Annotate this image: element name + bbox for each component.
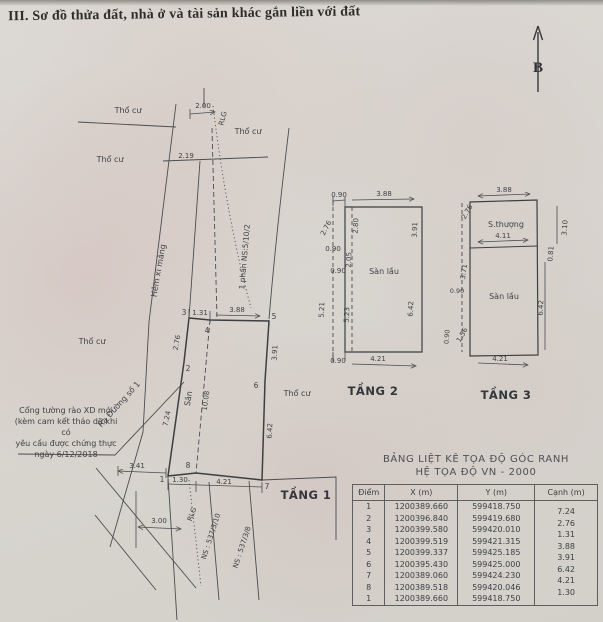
cell-edge: 2.76 (537, 519, 595, 528)
cell-point: 1 (353, 593, 385, 605)
t3-dim-371: 3.71 (459, 263, 469, 280)
neighbor-house-b-label: NS : 537/3/8 (232, 525, 253, 569)
cell-edge: 3.88 (537, 542, 595, 551)
alley-right-line (189, 161, 200, 318)
dim-10-08: 10.08 (201, 390, 212, 411)
cell-point: 3 (353, 524, 385, 536)
t2-dim-421: 4.21 (370, 355, 386, 363)
point-7: 7 (265, 482, 270, 491)
t2-dim-205: 2.05 (345, 252, 354, 268)
coordinate-table: Điểm X (m) Y (m) Cạnh (m) 11200389.66059… (352, 484, 598, 606)
cell-x: 1200396.840 (385, 513, 458, 525)
cell-edge: 1.30 (537, 588, 595, 597)
cell-x: 1200395.430 (385, 559, 458, 571)
cell-point: 4 (353, 536, 385, 548)
tho-cu-label-right: Thổ cư (283, 388, 312, 398)
floor2-plan: 0.90 3.88 2.76 0.90 0.90 5.21 2.80 2.05 … (318, 190, 422, 398)
cell-x: 1200389.518 (385, 582, 458, 594)
floor2-caption: TẦNG 2 (348, 381, 399, 398)
tho-cu-label-left: Thổ cư (78, 336, 107, 346)
point-1: 1 (160, 475, 165, 484)
t2-dim-090-b: 0.90 (330, 267, 346, 275)
floor3-caption: TẦNG 3 (481, 385, 532, 402)
t3-room-label: Sàn lầu (489, 291, 519, 301)
dim-3-00: 3.00 (151, 517, 167, 525)
t3-dim-090-outer: 0.90 (442, 329, 451, 344)
dim-2-19: 2.19 (178, 152, 194, 160)
cell-y: 599425.000 (458, 559, 535, 571)
cell-y: 599424.230 (458, 570, 535, 582)
dim-3-41: 3.41 (129, 462, 145, 470)
cell-edge: 4.21 (537, 576, 595, 585)
site-lines (18, 88, 336, 620)
south-boundary-line (168, 477, 177, 620)
cell-point: 2 (353, 513, 385, 525)
cell-y: 599420.046 (458, 582, 535, 594)
t3-dim-156: 1.56 (455, 326, 470, 344)
t2-dim-090-a: 0.90 (325, 245, 341, 253)
dim-7-24: 7.24 (162, 410, 173, 427)
road-label: Ra Đường số 1 (96, 379, 143, 429)
t2-dim-276: 2.76 (319, 219, 334, 237)
floor1-caption: TẦNG 1 (281, 485, 332, 502)
north-label: B (533, 60, 543, 76)
table-row: 11200389.660599418.7507.24 (353, 501, 598, 513)
point-4: 4 (205, 326, 210, 335)
cell-x: 1200389.660 (385, 593, 458, 605)
dim-3-91: 3.91 (270, 345, 279, 361)
t3-dim-388: 3.88 (496, 186, 512, 194)
t3-dim-421: 4.21 (492, 355, 508, 363)
t2-dim-521: 5.21 (318, 302, 327, 318)
t2-dim-090-bot: 0.90 (330, 357, 346, 365)
neighbor-step-line (262, 477, 336, 540)
coordinate-table-header-row: Điểm X (m) Y (m) Cạnh (m) (353, 485, 598, 501)
t3-dim-090: 0.90 (450, 287, 464, 295)
point-6: 6 (254, 381, 259, 390)
cell-point: 7 (353, 570, 385, 582)
road-edge-2 (95, 515, 156, 590)
rlg-dotted-line-south (189, 480, 201, 586)
cell-x: 1200399.519 (385, 536, 458, 548)
t2-dim-090-top: 0.90 (331, 191, 347, 199)
cell-x: 1200399.337 (385, 547, 458, 559)
alley-label: Hẻm xi măng (148, 243, 167, 298)
tho-cu-label-topright: Thổ cư (234, 126, 263, 136)
cell-y: 599420.010 (458, 524, 535, 536)
t3-dim-642: 6.42 (537, 300, 546, 316)
col-header-diem: Điểm (353, 485, 385, 501)
neighbor-house-a-label: NS : 537/3/10 (200, 512, 222, 560)
alley-left-line (110, 104, 176, 547)
setback-dashed-line (212, 128, 217, 318)
cell-y: 599419.680 (458, 513, 535, 525)
cell-x: 1200389.060 (385, 570, 458, 582)
t2-dim-388: 3.88 (376, 190, 392, 198)
coordinate-table-section: BẢNG LIỆT KÊ TỌA ĐỘ GÓC RANH HỆ TỌA ĐỘ V… (352, 454, 600, 606)
rlg-label-bottom: RLG (186, 506, 198, 522)
dim-2-76: 2.76 (172, 334, 183, 351)
t2-dim-280: 2.80 (352, 218, 361, 234)
dim-1-31: 1.31 (192, 309, 208, 317)
rlg-label-top: RLG (217, 111, 228, 127)
point-2: 2 (186, 364, 191, 373)
tho-cu-label-upperleft: Thổ cư (96, 154, 125, 164)
col-header-x: X (m) (385, 485, 458, 501)
boundary-line (78, 122, 176, 127)
cell-y: 599421.315 (458, 536, 535, 548)
cell-edge: 6.42 (537, 565, 595, 574)
floor3-plan: 3.88 S.thượng 4.11 3.10 0.81 6.42 2.76 3… (442, 186, 569, 402)
t3-dim-411: 4.11 (495, 232, 511, 240)
cell-y: 599425.185 (458, 547, 535, 559)
t2-dim-391: 3.91 (411, 222, 420, 238)
t3-dim-310: 3.10 (560, 220, 569, 236)
cell-point: 5 (353, 547, 385, 559)
point-3: 3 (182, 308, 187, 317)
cell-edge: 7.24 (537, 507, 595, 516)
dim-2-00: 2.00 (195, 102, 211, 110)
point-5: 5 (272, 312, 277, 321)
neighbor-line-2 (249, 481, 259, 600)
tho-cu-label-top: Thổ cư (114, 105, 143, 115)
dimension-lines (118, 109, 262, 548)
t3-dim-081: 0.81 (546, 246, 555, 262)
cell-x: 1200399.580 (385, 524, 458, 536)
point-8: 8 (186, 461, 191, 470)
cell-edge: 3.91 (537, 553, 595, 562)
t2-dim-642: 6.42 (407, 301, 416, 317)
north-arrow (534, 26, 543, 92)
yard-label: Sân (183, 390, 194, 406)
cell-y: 599418.750 (458, 593, 535, 605)
adjacent-parcel-label: 1 phần NS:5/10/2 (237, 224, 252, 290)
cell-point: 8 (353, 582, 385, 594)
dim-1-30: 1.30 (172, 476, 188, 484)
col-header-canh: Cạnh (m) (535, 485, 598, 501)
t2-dim-523: 5.23 (343, 307, 352, 323)
cell-edge: 1.31 (537, 530, 595, 539)
east-boundary-curve (269, 128, 289, 319)
t2-room-label: Sàn lầu (369, 266, 399, 276)
cell-x: 1200389.660 (385, 501, 458, 513)
col-header-y: Y (m) (458, 485, 535, 501)
dim-4-21: 4.21 (216, 478, 232, 486)
cell-point: 1 (353, 501, 385, 513)
coordinate-table-title: BẢNG LIỆT KÊ TỌA ĐỘ GÓC RANH (352, 454, 600, 465)
dim-3-88: 3.88 (229, 306, 245, 314)
t3-terrace-label: S.thượng (488, 220, 524, 229)
cell-y: 599418.750 (458, 501, 535, 513)
coordinate-table-subtitle: HỆ TỌA ĐỘ VN - 2000 (352, 467, 600, 478)
road-edge-1 (96, 468, 196, 588)
dim-6-42: 6.42 (266, 423, 275, 439)
scanned-land-certificate-page: III. Sơ đồ thửa đất, nhà ở và tài sản kh… (0, 0, 603, 622)
cell-point: 6 (353, 559, 385, 571)
